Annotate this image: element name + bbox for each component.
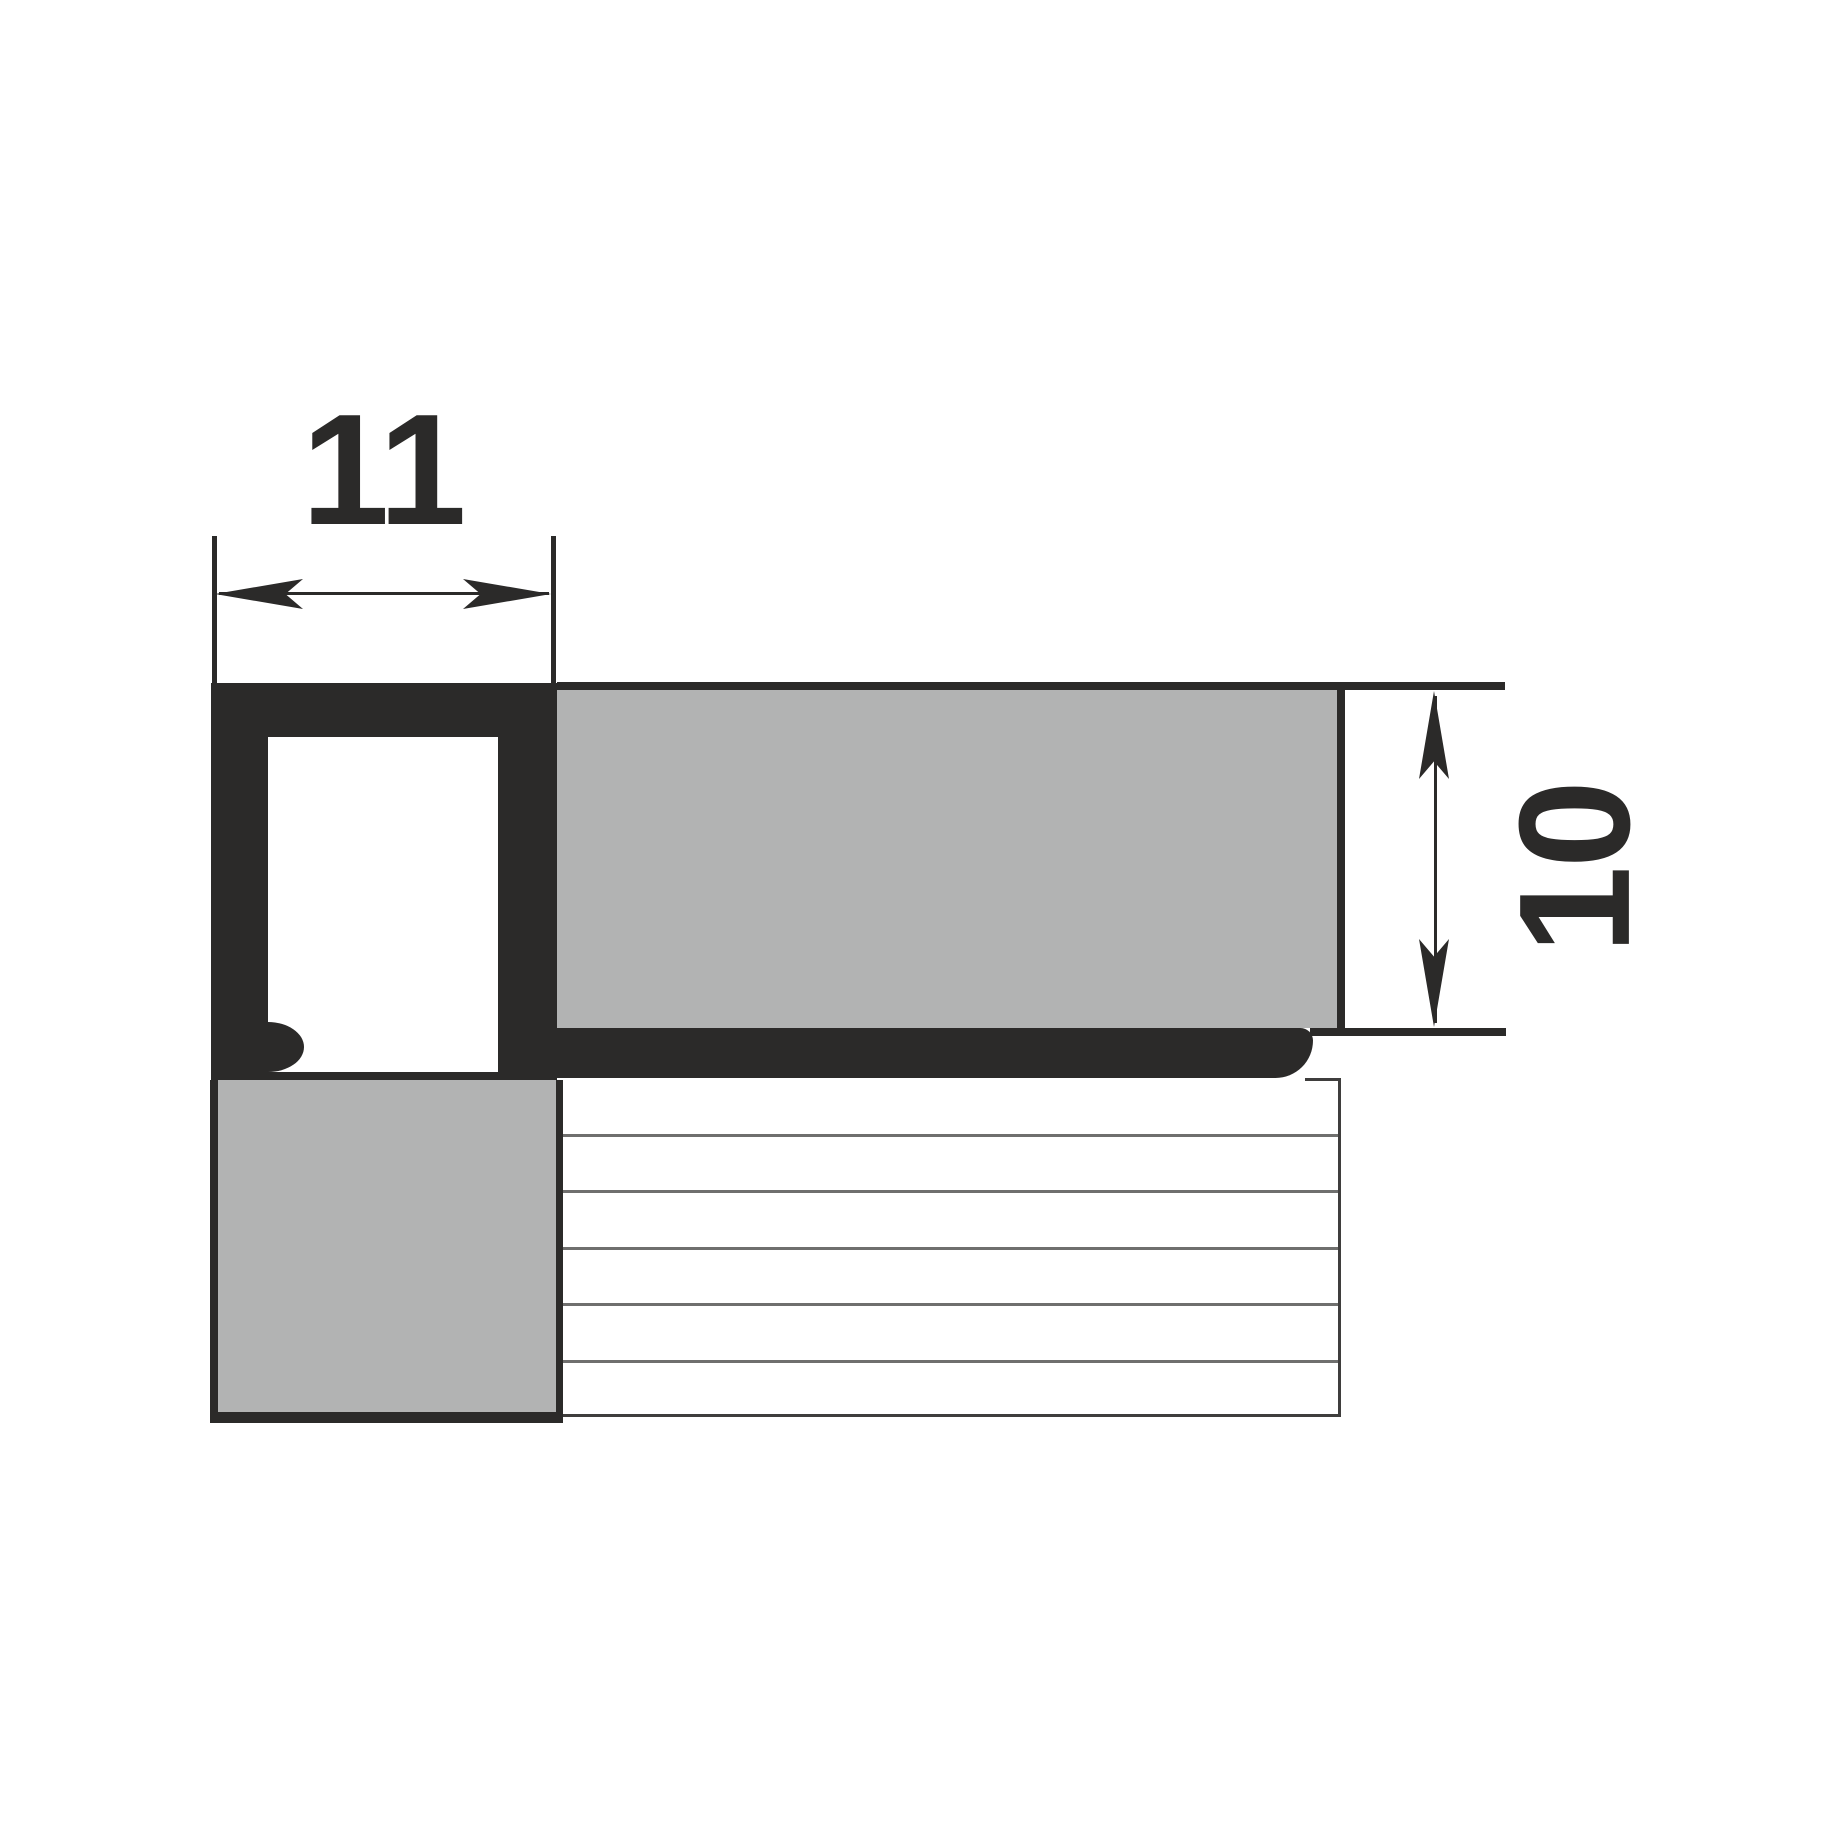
adhesive-area-top-edge (1305, 1078, 1341, 1081)
adhesive-layer-line (563, 1303, 1338, 1306)
width-extension-line-left (212, 536, 217, 688)
adhesive-layer-line (563, 1190, 1338, 1193)
dimension-height-label-wrap: 10 (1480, 752, 1670, 984)
upper-tile (557, 690, 1337, 1028)
tile-top-edge-extension-line (557, 682, 1505, 690)
profile-cavity (268, 737, 498, 1072)
upper-tile-right-edge (1337, 683, 1345, 1028)
profile-base-flange (498, 1028, 1313, 1078)
width-extension-line-right (551, 536, 556, 688)
dimension-width-label: 11 (213, 391, 553, 549)
adhesive-layer-line (563, 1247, 1338, 1250)
diagram-canvas: 11 10 (0, 0, 1834, 1833)
adhesive-layer-line (563, 1360, 1338, 1363)
height-extension-line-bottom (1310, 1028, 1506, 1036)
dimension-height-label: 10 (1496, 782, 1654, 954)
adhesive-layer-line (563, 1134, 1338, 1137)
lower-tile (210, 1080, 563, 1423)
